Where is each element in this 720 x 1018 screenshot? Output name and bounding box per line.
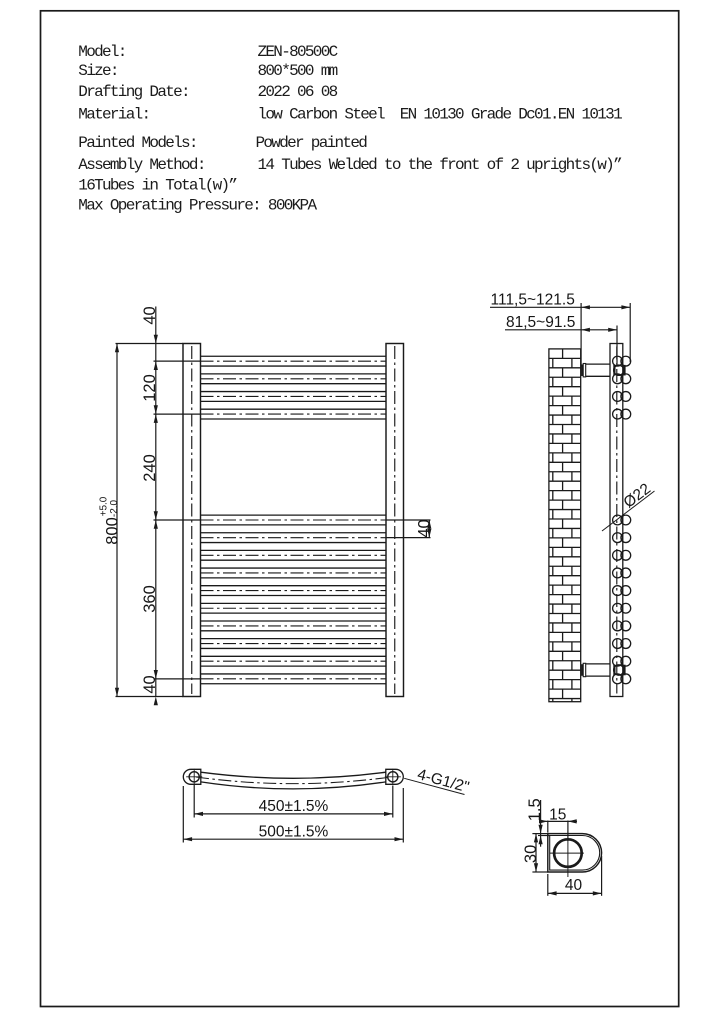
svg-text:low Carbon Steel EN 10130 Gra: low Carbon Steel EN 10130 Grade Dc01.EN … [258, 106, 623, 124]
svg-text:Ø22: Ø22 [620, 480, 654, 511]
svg-text:Model:: Model: [78, 43, 125, 61]
svg-text:800: 800 [103, 517, 121, 545]
svg-text:15: 15 [549, 806, 566, 823]
svg-text:Powder painted: Powder painted [256, 134, 368, 152]
svg-text:1.5: 1.5 [526, 798, 544, 821]
svg-text:120: 120 [141, 374, 159, 402]
svg-text:81,5~91.5: 81,5~91.5 [506, 314, 575, 331]
svg-text:Size:: Size: [78, 62, 118, 80]
svg-text:30: 30 [522, 845, 540, 863]
svg-text:40: 40 [416, 519, 434, 537]
svg-text:40: 40 [565, 877, 583, 894]
svg-text:Material:: Material: [78, 106, 149, 124]
svg-text:800*500 mm: 800*500 mm [258, 62, 338, 80]
svg-text:450±1.5%: 450±1.5% [259, 798, 329, 815]
svg-text:ZEN-80500C: ZEN-80500C [258, 43, 338, 61]
svg-text:Drafting Date:: Drafting Date: [78, 83, 189, 101]
svg-text:+5.0: +5.0 [99, 496, 110, 516]
svg-text:14 Tubes Welded to the front o: 14 Tubes Welded to the front of 2 uprigh… [258, 156, 623, 174]
svg-text:4-G1/2": 4-G1/2" [415, 766, 470, 796]
svg-text:500±1.5%: 500±1.5% [259, 824, 329, 841]
svg-text:Max Operating Pressure: 800KPA: Max Operating Pressure: 800KPA [78, 196, 317, 214]
svg-text:240: 240 [141, 454, 159, 482]
svg-text:Painted Models:: Painted Models: [78, 134, 197, 152]
svg-text:40: 40 [141, 675, 159, 693]
svg-text:2022 06 08: 2022 06 08 [258, 83, 338, 101]
svg-text:16Tubes in Total(w)”: 16Tubes in Total(w)” [78, 177, 237, 195]
svg-text:-2.0: -2.0 [109, 499, 120, 517]
svg-text:360: 360 [141, 585, 159, 613]
svg-text:Assembly Method:: Assembly Method: [78, 156, 204, 174]
svg-text:40: 40 [141, 306, 159, 324]
svg-text:111,5~121.5: 111,5~121.5 [491, 292, 575, 309]
